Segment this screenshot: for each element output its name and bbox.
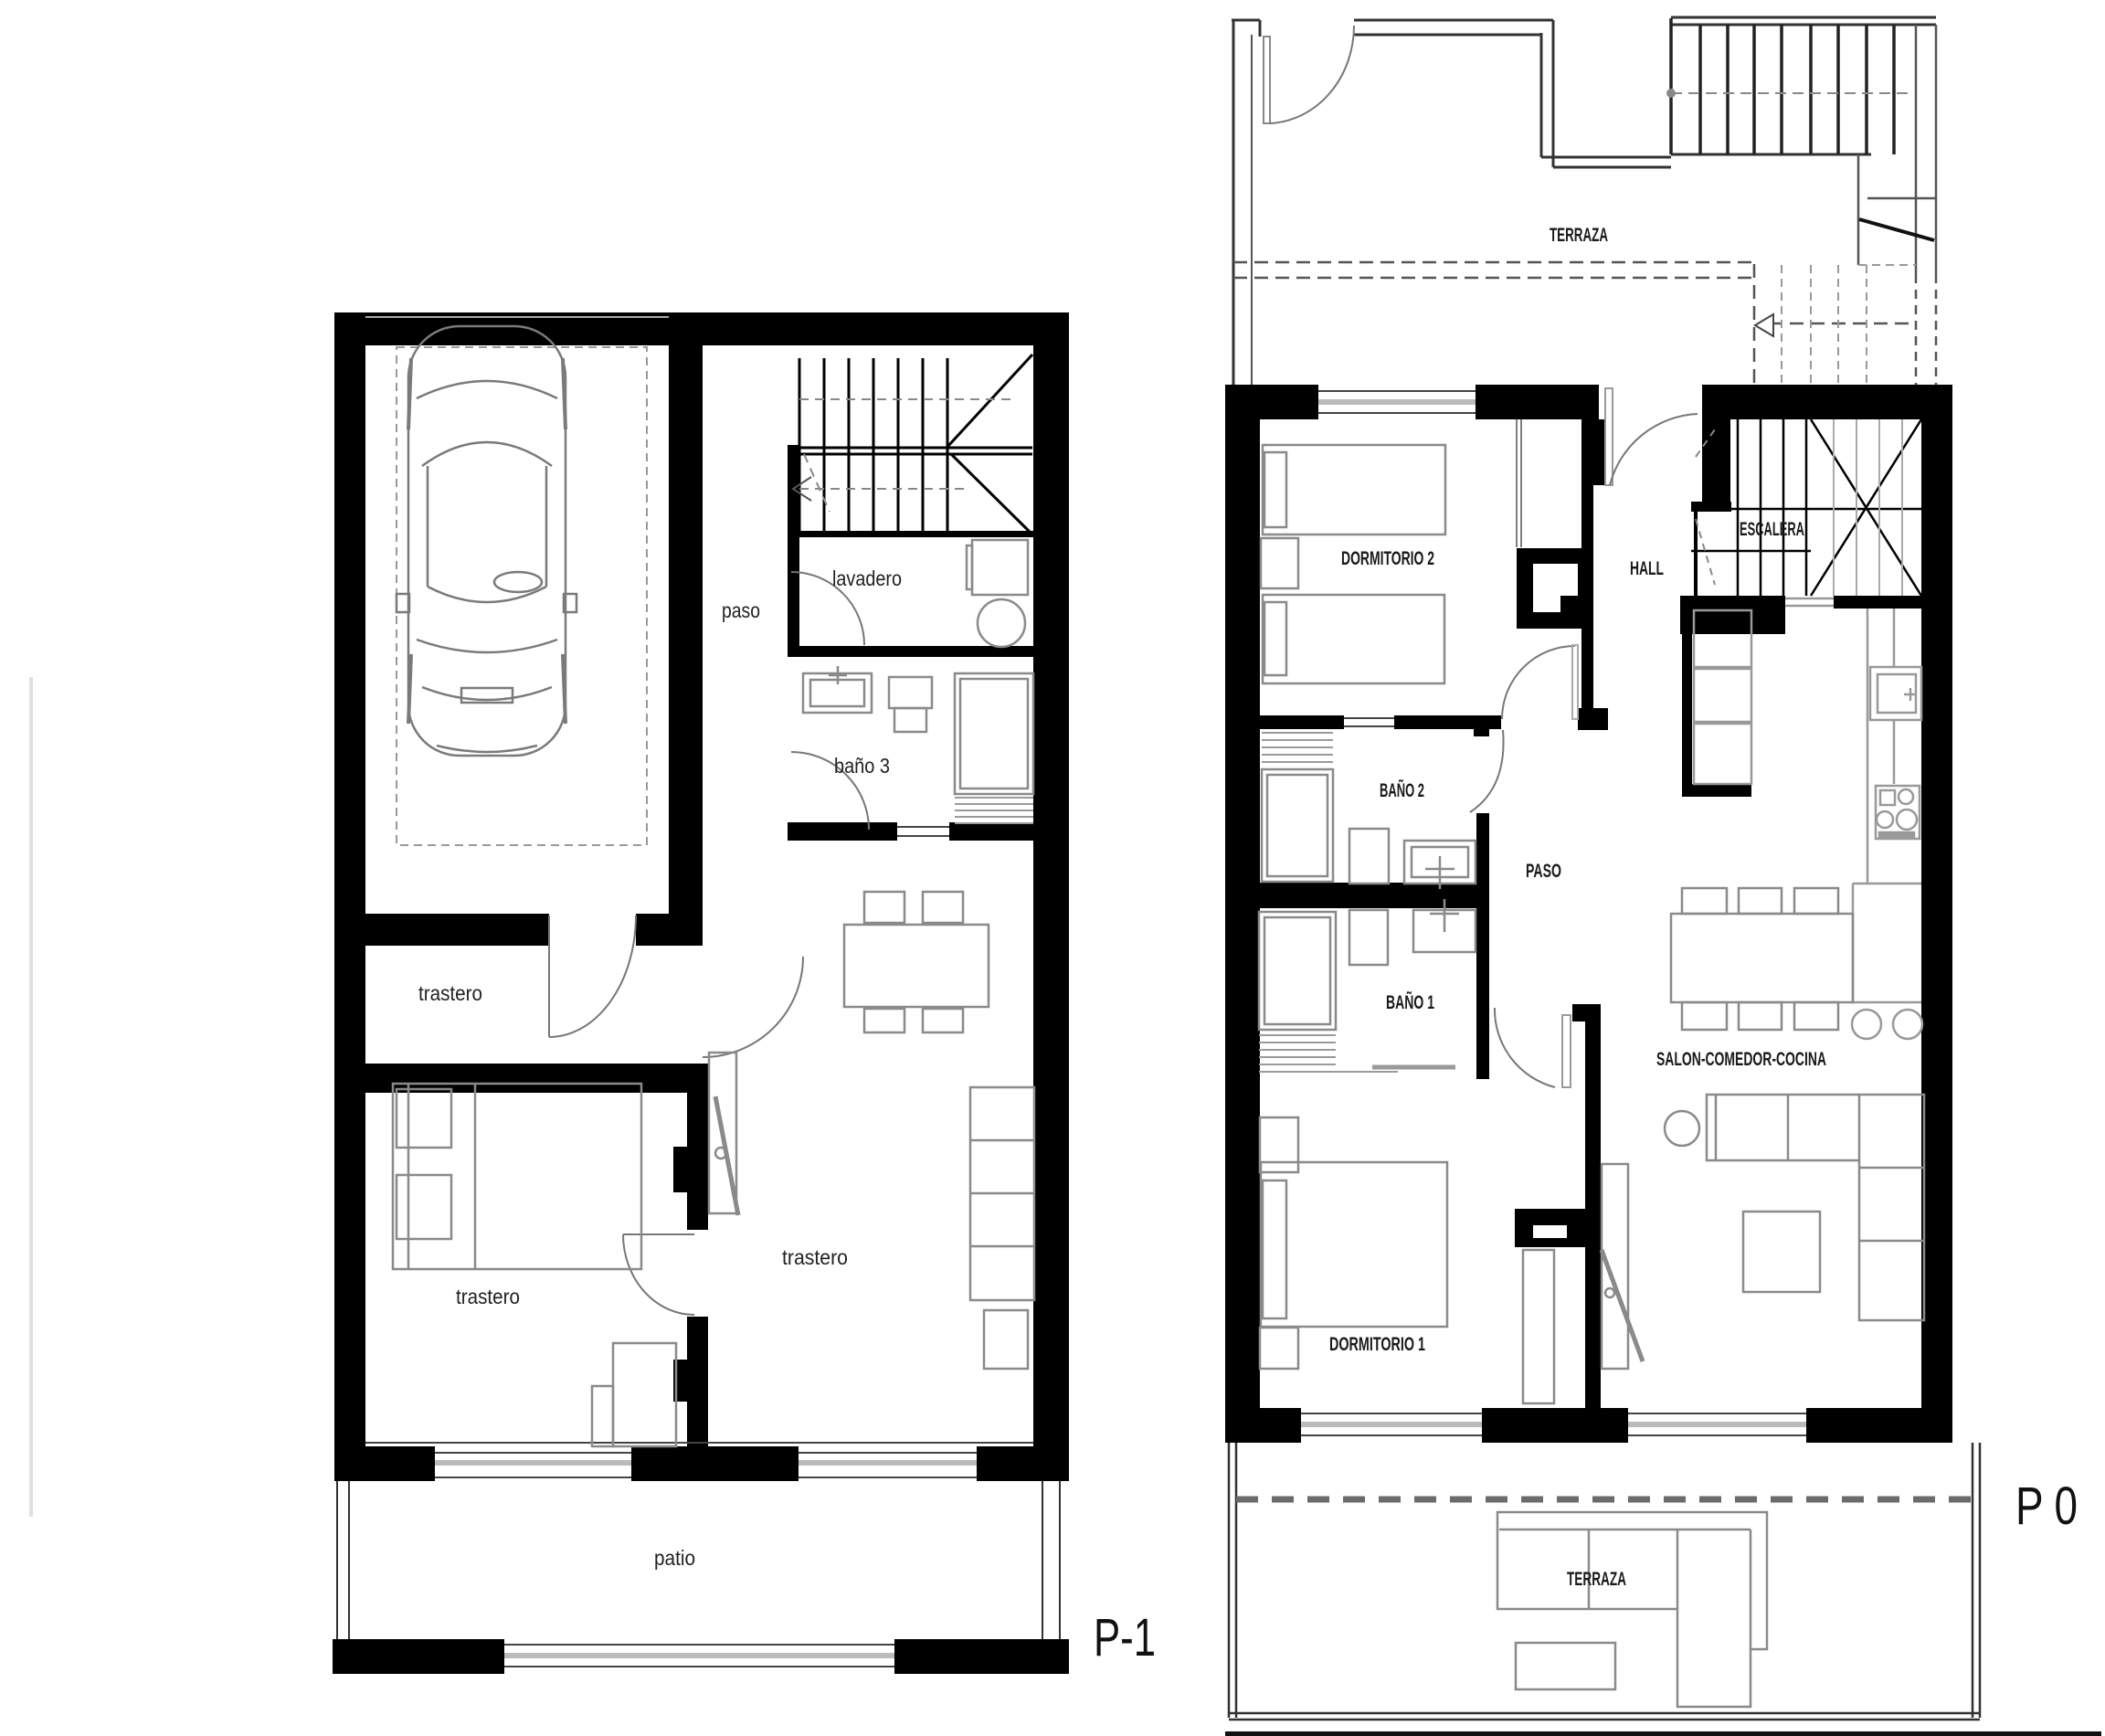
svg-text:SALON-COMEDOR-COCINA: SALON-COMEDOR-COCINA [1656, 1049, 1826, 1070]
svg-text:PASO: PASO [1526, 861, 1561, 882]
svg-text:lavadero: lavadero [832, 566, 902, 590]
svg-text:patio: patio [654, 1546, 695, 1570]
svg-text:baño 3: baño 3 [834, 754, 890, 778]
svg-text:trastero: trastero [782, 1245, 848, 1269]
svg-text:trastero: trastero [456, 1285, 520, 1308]
svg-text:paso: paso [722, 598, 760, 622]
svg-text:P-1: P-1 [1094, 1608, 1156, 1667]
svg-text:DORMITORIO 2: DORMITORIO 2 [1341, 548, 1434, 569]
svg-text:DORMITORIO 1: DORMITORIO 1 [1329, 1334, 1425, 1355]
svg-text:BAÑO 2: BAÑO 2 [1380, 780, 1424, 801]
svg-text:HALL: HALL [1630, 558, 1664, 579]
svg-text:TERRAZA: TERRAZA [1550, 225, 1608, 246]
svg-text:trastero: trastero [418, 981, 482, 1005]
svg-text:ESCALERA: ESCALERA [1740, 519, 1804, 540]
svg-text:BAÑO 1: BAÑO 1 [1386, 992, 1434, 1013]
svg-text:TERRAZA: TERRAZA [1567, 1569, 1626, 1590]
svg-text:P 0: P 0 [2015, 1477, 2078, 1536]
